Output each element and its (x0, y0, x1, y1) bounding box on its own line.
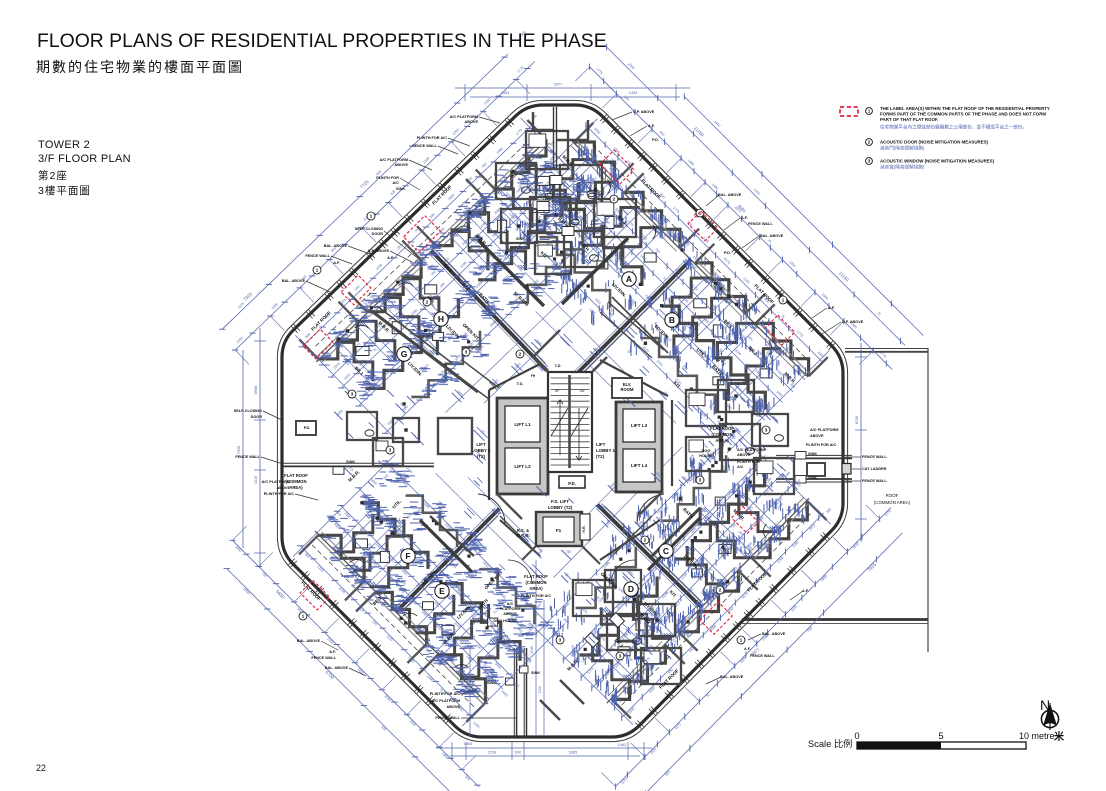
svg-text:A/C PLATFORM: A/C PLATFORM (262, 480, 290, 484)
svg-text:5365: 5365 (569, 751, 577, 755)
svg-text:B: B (669, 315, 675, 325)
svg-text:SINK: SINK (531, 671, 540, 675)
svg-text:SINK: SINK (808, 476, 817, 480)
svg-text:3/F FLOOR PLAN: 3/F FLOOR PLAN (38, 153, 131, 165)
svg-text:PART OF THAT FLAT ROOF.: PART OF THAT FLAT ROOF. (880, 117, 938, 122)
svg-text:U.P. ABOVE: U.P. ABOVE (633, 110, 655, 114)
svg-text:PLINTH FOR A/C: PLINTH FOR A/C (806, 443, 836, 447)
svg-text:T.D.: T.D. (517, 382, 524, 386)
svg-text:A/C PLATFORM: A/C PLATFORM (450, 115, 478, 119)
svg-text:BAL. ABOVE: BAL. ABOVE (297, 639, 321, 643)
svg-text:LIFT: LIFT (476, 442, 486, 447)
svg-text:米: 米 (1054, 730, 1065, 743)
svg-text:10 metre: 10 metre (1019, 731, 1055, 741)
svg-text:F: F (405, 551, 410, 561)
svg-text:SINK: SINK (516, 237, 525, 241)
svg-text:2: 2 (644, 538, 647, 544)
svg-text:期數的住宅物業的樓面平面圖: 期數的住宅物業的樓面平面圖 (36, 59, 244, 75)
svg-text:1: 1 (740, 638, 743, 644)
svg-text:LIFT L1: LIFT L1 (514, 422, 531, 427)
svg-text:A: A (626, 274, 632, 284)
svg-text:PLINTH FOR A/C: PLINTH FOR A/C (264, 492, 294, 496)
svg-text:(COMMON: (COMMON (526, 580, 547, 585)
svg-text:1: 1 (370, 214, 373, 220)
svg-text:TOWER 2: TOWER 2 (38, 139, 90, 151)
svg-text:PLATFORM: PLATFORM (500, 607, 521, 611)
svg-text:4319: 4319 (254, 476, 258, 484)
svg-text:SINK: SINK (396, 187, 405, 191)
svg-text:DN: DN (580, 389, 585, 393)
svg-text:住宅物業平台內之標註部份屬期數之公用部份，並不構成平台之一部: 住宅物業平台內之標註部份屬期數之公用部份，並不構成平台之一部份。 (880, 123, 1027, 130)
svg-text:7925: 7925 (237, 446, 241, 454)
svg-text:THE LABEL AREA(S) WITHIN THE F: THE LABEL AREA(S) WITHIN THE FLAT ROOF O… (880, 106, 1050, 111)
svg-text:2: 2 (519, 352, 522, 358)
svg-text:PLINTH FOR A/C: PLINTH FOR A/C (430, 692, 460, 696)
svg-text:LOBBY 2: LOBBY 2 (472, 448, 492, 453)
svg-text:SELF-CLOSING: SELF-CLOSING (234, 409, 262, 413)
svg-text:3: 3 (559, 638, 562, 644)
svg-text:P.D.: P.D. (568, 481, 576, 486)
svg-text:ACOUSTIC DOOR (NOISE MITIGATIO: ACOUSTIC DOOR (NOISE MITIGATION MEASURES… (880, 140, 989, 145)
svg-text:2: 2 (868, 140, 871, 145)
svg-text:FENCE WALL: FENCE WALL (311, 656, 336, 660)
svg-text:100: 100 (606, 519, 610, 525)
svg-text:A/C PLATFORM: A/C PLATFORM (380, 158, 408, 162)
svg-text:1453: 1453 (629, 91, 637, 95)
svg-text:A/C: A/C (737, 465, 744, 469)
svg-text:ABOVE: ABOVE (276, 486, 290, 490)
svg-text:A/C PLATFORM: A/C PLATFORM (432, 699, 460, 703)
svg-text:A.F.: A.F. (329, 650, 336, 654)
svg-text:(COMMON: (COMMON (712, 432, 733, 437)
svg-text:1: 1 (868, 109, 871, 114)
svg-text:(T2): (T2) (477, 454, 486, 459)
svg-text:PLINTH FOR A/C: PLINTH FOR A/C (521, 594, 551, 598)
svg-text:ABOVE: ABOVE (503, 612, 517, 616)
svg-text:FLAT ROOF: FLAT ROOF (524, 574, 548, 579)
svg-text:BAL. ABOVE: BAL. ABOVE (324, 244, 348, 248)
svg-text:SINK: SINK (487, 681, 496, 685)
svg-text:600: 600 (515, 751, 521, 755)
svg-text:3: 3 (765, 428, 768, 434)
svg-text:H: H (438, 314, 444, 324)
svg-text:1463: 1463 (618, 743, 626, 747)
svg-text:2: 2 (613, 197, 616, 203)
svg-text:Scale 比例: Scale 比例 (808, 738, 852, 749)
svg-text:C: C (663, 546, 669, 556)
svg-text:1463: 1463 (464, 742, 472, 746)
svg-text:LIFT L2: LIFT L2 (514, 464, 531, 469)
svg-text:T.D.: T.D. (555, 364, 562, 368)
svg-text:P.D.: P.D. (304, 426, 311, 430)
svg-text:LIFT L4: LIFT L4 (631, 463, 648, 468)
svg-text:A.F.: A.F. (648, 124, 655, 128)
svg-text:減音門(隔音緩解措施): 減音門(隔音緩解措施) (880, 145, 925, 152)
svg-text:3049: 3049 (530, 646, 534, 654)
svg-text:AREA): AREA) (289, 485, 303, 490)
svg-text:8159: 8159 (855, 416, 859, 424)
svg-text:BAL. ABOVE: BAL. ABOVE (282, 279, 306, 283)
svg-text:3: 3 (699, 478, 702, 484)
svg-text:DOOR: DOOR (372, 232, 384, 236)
svg-text:1: 1 (782, 298, 785, 304)
svg-text:2: 2 (719, 588, 722, 594)
svg-text:A.F.: A.F. (744, 647, 751, 651)
svg-text:A.F.: A.F. (802, 589, 809, 593)
svg-text:H.R.: H.R. (582, 525, 586, 532)
svg-text:DOG HOUSE: DOG HOUSE (493, 619, 517, 623)
svg-text:FENCE WALL: FENCE WALL (305, 254, 330, 258)
svg-text:DOG: DOG (702, 449, 711, 453)
svg-text:A.F.: A.F. (333, 261, 340, 265)
svg-text:減音窗(隔音緩解措施): 減音窗(隔音緩解措施) (880, 164, 925, 171)
svg-text:UP: UP (555, 389, 560, 393)
svg-text:ABOVE: ABOVE (737, 453, 751, 457)
svg-text:22: 22 (36, 763, 46, 773)
svg-text:BAL. ABOVE: BAL. ABOVE (720, 675, 744, 679)
svg-text:SINK: SINK (808, 452, 817, 456)
svg-text:E: E (439, 586, 445, 596)
svg-text:U.P. ABOVE: U.P. ABOVE (368, 249, 390, 253)
svg-text:ABOVE: ABOVE (394, 163, 408, 167)
svg-text:A/C PLATFORM: A/C PLATFORM (810, 428, 838, 432)
svg-text:6908: 6908 (254, 386, 258, 394)
svg-text:0: 0 (854, 731, 859, 742)
svg-text:(T2): (T2) (596, 454, 605, 459)
svg-text:A.F.: A.F. (387, 256, 394, 260)
svg-text:P.D.: P.D. (724, 251, 731, 255)
svg-text:U.P. ABOVE: U.P. ABOVE (842, 320, 864, 324)
svg-text:P.D.: P.D. (652, 138, 659, 142)
svg-text:G: G (401, 349, 408, 359)
svg-text:2: 2 (426, 300, 429, 306)
svg-text:PLINTH FOR: PLINTH FOR (737, 460, 760, 464)
svg-text:100: 100 (524, 533, 530, 537)
svg-text:FENCE WALL: FENCE WALL (862, 455, 887, 459)
svg-text:ABOVE: ABOVE (446, 705, 460, 709)
svg-text:A/C PLATFORM: A/C PLATFORM (737, 448, 765, 452)
svg-text:A.F.: A.F. (828, 306, 835, 310)
svg-text:FENCE WALL: FENCE WALL (748, 222, 773, 226)
svg-text:FENCE WALL: FENCE WALL (412, 144, 437, 148)
svg-text:LOBBY (T2): LOBBY (T2) (548, 505, 573, 510)
svg-text:BAL. ABOVE: BAL. ABOVE (718, 193, 742, 197)
svg-text:FLAT ROOF: FLAT ROOF (284, 473, 308, 478)
svg-text:3: 3 (868, 159, 871, 164)
svg-text:A/C: A/C (507, 602, 514, 606)
svg-text:FH: FH (531, 374, 536, 378)
svg-text:FLAT ROOF: FLAT ROOF (710, 426, 734, 431)
svg-text:(COMMON AREA): (COMMON AREA) (874, 500, 911, 505)
svg-text:BAL. ABOVE: BAL. ABOVE (760, 234, 784, 238)
svg-text:3: 3 (389, 448, 392, 454)
svg-text:FENCE WALL: FENCE WALL (862, 479, 887, 483)
svg-text:3樓平面圖: 3樓平面圖 (38, 184, 91, 197)
svg-text:PLINTH FOR: PLINTH FOR (376, 176, 399, 180)
svg-text:A/C: A/C (392, 181, 399, 185)
svg-text:F.S. LIFT: F.S. LIFT (551, 499, 569, 504)
svg-text:FENCE WALL: FENCE WALL (235, 455, 260, 459)
svg-text:LIFT: LIFT (596, 442, 606, 447)
svg-text:F1: F1 (556, 528, 562, 533)
svg-text:750: 750 (566, 550, 572, 554)
svg-text:3: 3 (465, 350, 468, 356)
svg-text:1123: 1123 (538, 686, 542, 693)
svg-text:ROOF: ROOF (886, 493, 899, 498)
svg-text:SINK: SINK (346, 460, 355, 464)
svg-text:CAT LADDER: CAT LADDER (862, 467, 887, 471)
svg-text:2977: 2977 (554, 83, 562, 87)
svg-text:BAL. ABOVE: BAL. ABOVE (325, 666, 349, 670)
svg-text:5: 5 (938, 731, 943, 742)
svg-text:D: D (628, 584, 634, 594)
svg-text:SELF-CLOSING: SELF-CLOSING (355, 227, 383, 231)
svg-text:HOUSE: HOUSE (699, 454, 713, 458)
svg-text:1: 1 (302, 614, 305, 620)
svg-text:3: 3 (351, 392, 354, 398)
svg-text:A.F.: A.F. (741, 216, 748, 220)
svg-text:FORMS PART OF THE COMMON PARTS: FORMS PART OF THE COMMON PARTS OF THE PH… (880, 112, 1046, 117)
svg-text:DOOR: DOOR (251, 415, 263, 419)
svg-text:1: 1 (316, 268, 319, 274)
svg-text:ACOUSTIC WINDOW (NOISE MITIGAT: ACOUSTIC WINDOW (NOISE MITIGATION MEASUR… (880, 159, 995, 164)
svg-text:ROOM: ROOM (620, 387, 634, 392)
svg-text:LOBBY 1: LOBBY 1 (596, 448, 616, 453)
svg-text:PLINTH FOR A/C: PLINTH FOR A/C (417, 136, 447, 140)
svg-text:3: 3 (619, 654, 622, 660)
svg-text:FENCE WALL: FENCE WALL (435, 716, 460, 720)
svg-text:第2座: 第2座 (38, 169, 68, 182)
svg-text:AREA): AREA) (529, 586, 543, 591)
svg-text:AREA): AREA) (715, 438, 729, 443)
svg-text:FENCE WALL: FENCE WALL (750, 654, 775, 658)
svg-text:BAL. ABOVE: BAL. ABOVE (762, 632, 786, 636)
svg-text:ABOVE: ABOVE (810, 434, 824, 438)
svg-text:ABOVE: ABOVE (464, 120, 478, 124)
svg-text:2159: 2159 (488, 751, 496, 755)
svg-text:LIFT L3: LIFT L3 (631, 423, 648, 428)
